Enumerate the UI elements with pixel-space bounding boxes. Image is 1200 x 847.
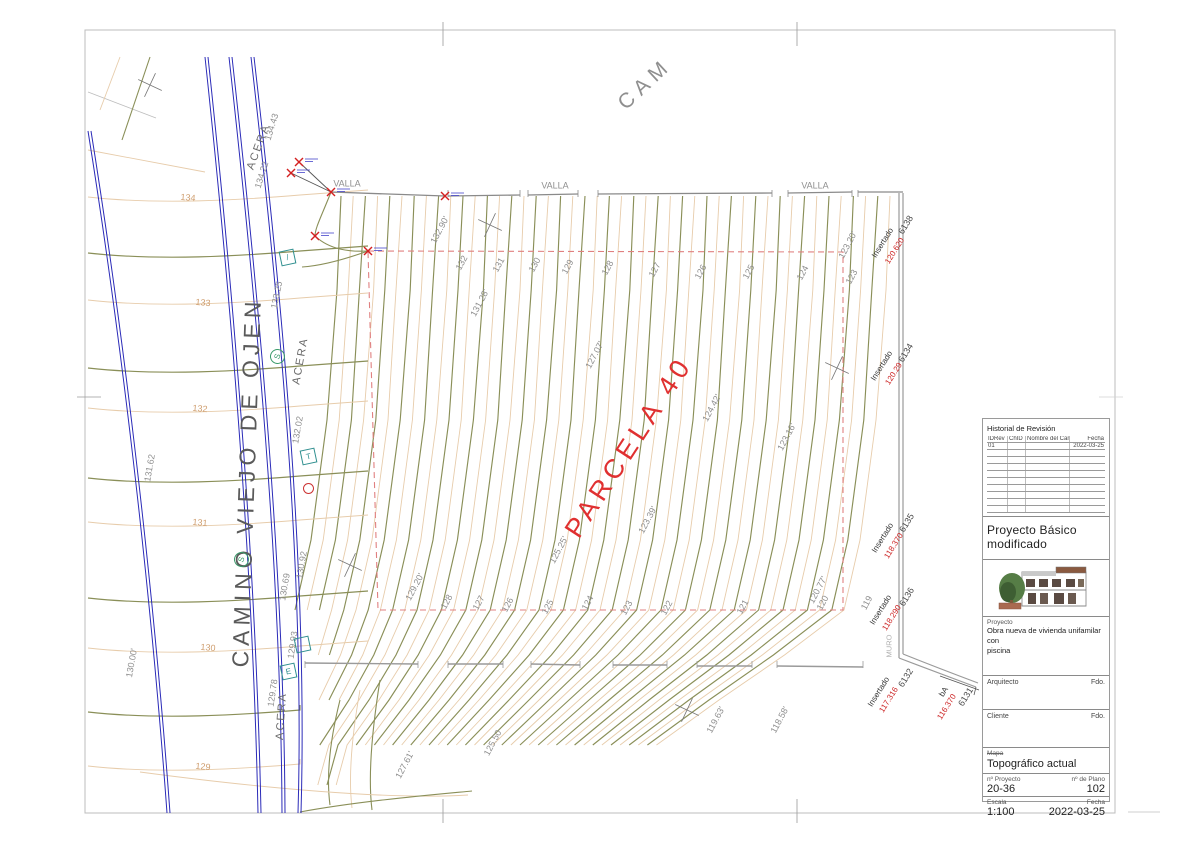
rev-col-idrev: IDRev bbox=[987, 436, 1008, 443]
rev-id: 01 bbox=[987, 443, 1008, 450]
scale-date-row: Escala Fecha 1:100 2022-03-25 bbox=[983, 797, 1109, 819]
project-description-line2: piscina bbox=[987, 646, 1105, 656]
rev-date: 2022-03-25 bbox=[1070, 443, 1106, 450]
scale-value: 1:100 bbox=[987, 806, 1015, 818]
revision-table: IDRev ChID Nombre del Cambio Fecha 01 20… bbox=[987, 436, 1105, 513]
client-sign-box: Cliente Fdo. bbox=[983, 710, 1109, 748]
rev-name bbox=[1026, 443, 1070, 450]
date-label: Fecha bbox=[1087, 799, 1105, 806]
title-block: Historial de Revisión IDRev ChID Nombre … bbox=[982, 418, 1110, 802]
architect-label: Arquitecto bbox=[987, 679, 1019, 686]
rev-col-chid: ChID bbox=[1008, 436, 1026, 443]
scale-label: Escala bbox=[987, 799, 1007, 806]
date-value: 2022-03-25 bbox=[1049, 806, 1105, 818]
client-label: Cliente bbox=[987, 713, 1009, 720]
project-no-value: 20-36 bbox=[987, 783, 1015, 795]
project-no-label: nº Proyecto bbox=[987, 776, 1020, 783]
rev-col-name: Nombre del Cambio bbox=[1026, 436, 1070, 443]
project-description-line1: Obra nueva de vivienda unifamilar con bbox=[987, 626, 1105, 646]
house-illustration bbox=[983, 560, 1109, 613]
revision-row: 01 2022-03-25 bbox=[987, 443, 1105, 450]
plan-no-value: 102 bbox=[1087, 783, 1105, 795]
architect-sign-box: Arquitecto Fdo. bbox=[983, 676, 1109, 710]
map-title: Topográfico actual bbox=[987, 757, 1105, 772]
client-sign-label: Fdo. bbox=[1091, 713, 1105, 720]
map-label: Mapa bbox=[987, 750, 1105, 757]
rev-chid bbox=[1008, 443, 1026, 450]
project-label: Proyecto bbox=[987, 619, 1105, 626]
plan-sheet: PARCELA 40CAMINO VIEJO DE OJENCAMACERAAC… bbox=[0, 0, 1200, 847]
project-number-row: nº Proyecto nº de Plano 20-36 102 bbox=[983, 774, 1109, 797]
revision-history-title: Historial de Revisión bbox=[987, 424, 1105, 433]
architect-sign-label: Fdo. bbox=[1091, 679, 1105, 686]
plan-no-label: nº de Plano bbox=[1072, 776, 1105, 783]
project-title: Proyecto Básico modificado bbox=[983, 517, 1109, 556]
